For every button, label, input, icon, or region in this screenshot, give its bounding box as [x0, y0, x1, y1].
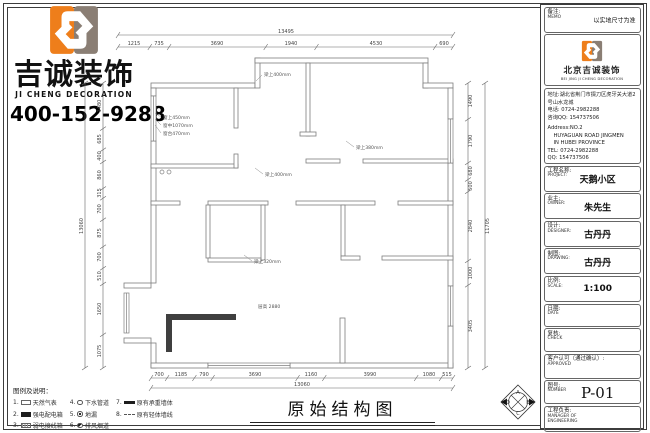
- svg-text:510: 510: [97, 271, 103, 281]
- bearing-wall-icon: [124, 401, 135, 404]
- address-cn: 地址:湖北省荆门市掇刀区虎牙关大道2号山水龙城: [548, 92, 637, 107]
- svg-text:梁上380mm: 梁上380mm: [356, 144, 383, 151]
- svg-text:700: 700: [97, 204, 103, 214]
- drawing-number-value: P-01: [581, 384, 614, 402]
- svg-text:1000: 1000: [468, 267, 474, 280]
- svg-text:A: A: [516, 390, 520, 396]
- legend-item: 1.天然气表: [13, 398, 63, 407]
- svg-text:C: C: [516, 411, 520, 417]
- svg-text:3405: 3405: [468, 320, 474, 333]
- svg-text:1490: 1490: [468, 95, 474, 108]
- plan-annotations: 窗上450mm 窗中1070mm 窗台470mm 梁上400mm 梁上380mm…: [155, 71, 383, 310]
- svg-text:790: 790: [199, 372, 209, 378]
- svg-text:2840: 2840: [468, 220, 474, 233]
- svg-text:735: 735: [154, 41, 164, 47]
- phone-cn: 电话: 0724-2982288: [548, 107, 637, 115]
- scale-value: 1:100: [583, 284, 612, 294]
- svg-text:3690: 3690: [211, 41, 224, 47]
- svg-text:1160: 1160: [305, 372, 318, 378]
- qq-cn: 咨询QQ: 154737506: [548, 115, 637, 123]
- tel-en: TEL: 0724-2982288: [548, 148, 637, 156]
- legend-title: 图例及说明：: [13, 385, 238, 395]
- svg-text:梁上400mm: 梁上400mm: [265, 171, 292, 178]
- walls: [124, 58, 453, 368]
- svg-text:窗中1070mm: 窗中1070mm: [163, 122, 193, 129]
- svg-text:685: 685: [97, 134, 103, 144]
- svg-text:500: 500: [468, 181, 474, 191]
- company-row: 北京吉诚装饰 BEI JING JI CHENG DECORATION: [544, 34, 641, 86]
- svg-text:1790: 1790: [468, 135, 474, 148]
- svg-text:315: 315: [97, 188, 103, 198]
- svg-text:1075: 1075: [97, 345, 103, 358]
- legend-item: 8.原有轻体墙线: [116, 410, 173, 419]
- legend-item: 6.排风烟道: [70, 421, 109, 430]
- address-en-3: IN HUBEI PROVINCE: [548, 140, 637, 148]
- svg-text:梁上400mm: 梁上400mm: [264, 71, 291, 78]
- svg-text:860: 860: [97, 170, 103, 180]
- gas-meter-icon: [21, 400, 31, 405]
- svg-text:1185: 1185: [175, 372, 188, 378]
- field-date: 日期:DATE: [544, 304, 641, 327]
- svg-text:D: D: [506, 400, 510, 406]
- project-value: 天鹅小区: [580, 173, 616, 186]
- field-project: 工程名称:PROJECT: 天鹅小区: [544, 166, 641, 192]
- legend-item: 7.原有承重墙体: [116, 398, 173, 407]
- drafter-value: 古丹丹: [584, 255, 611, 268]
- light-wall-icon: [124, 414, 135, 415]
- ceiling-height-label: 层高 2880: [258, 303, 280, 310]
- memo-label-en: MEMO: [548, 16, 562, 21]
- owner-value: 朱先生: [584, 200, 611, 213]
- svg-text:窗台470mm: 窗台470mm: [163, 130, 190, 137]
- exhaust-flue-icon: [77, 423, 83, 429]
- drawing-title: 原始结构图: [250, 395, 435, 426]
- dim-top-total: 13495: [278, 29, 294, 35]
- svg-text:1480: 1480: [97, 100, 103, 113]
- power-distribution-box-icon: [21, 412, 31, 417]
- svg-text:700: 700: [97, 252, 103, 262]
- svg-text:1080: 1080: [423, 372, 436, 378]
- svg-text:680: 680: [468, 166, 474, 176]
- memo-row: 备注:MEMO 以实地尺寸为准: [544, 7, 641, 33]
- svg-text:400: 400: [97, 151, 103, 161]
- address-en-2: HUYAGUAN ROAD JINGMEN: [548, 133, 637, 141]
- svg-text:3990: 3990: [364, 372, 377, 378]
- company-name-en: BEI JING JI CHENG DECORATION: [561, 77, 623, 81]
- svg-text:1940: 1940: [285, 41, 298, 47]
- qq-en: QQ: 154737506: [548, 155, 637, 163]
- svg-text:窗上450mm: 窗上450mm: [163, 114, 190, 121]
- svg-text:1215: 1215: [128, 41, 141, 47]
- svg-text:690: 690: [439, 41, 449, 47]
- floor-plan: 13495 1215 735 3690 1940 4530 690 700 11…: [58, 26, 518, 404]
- dim-left-total: 13060: [79, 218, 85, 234]
- legend: 图例及说明： 1.天然气表 2.强电配电箱 3.弱电接线箱 4.下水管道 5.地…: [13, 385, 238, 430]
- company-logo-small-icon: [581, 40, 603, 62]
- address-en-1: Address:NO.2: [548, 125, 637, 133]
- svg-text:4530: 4530: [370, 41, 383, 47]
- load-bearing-walls: [166, 314, 236, 352]
- field-approved: 客户认可（通过确认）:APPROVED: [544, 354, 641, 379]
- field-drafter: 制图:DRAWING: 古丹丹: [544, 248, 641, 274]
- floor-drain-icon: [77, 411, 83, 417]
- legend-item: 3.弱电接线箱: [13, 421, 63, 430]
- dim-right-total: 11705: [485, 218, 491, 234]
- field-owner: 业主:OWNER: 朱先生: [544, 193, 641, 219]
- field-scale: 比例:SCALE: 1:100: [544, 276, 641, 302]
- svg-text:1650: 1650: [97, 303, 103, 316]
- field-manager: 工程负责:MANAGER OF ENGINEERING: [544, 406, 641, 432]
- weak-current-box-icon: [21, 423, 31, 428]
- svg-text:515: 515: [442, 372, 452, 378]
- field-check: 复核:CHECK: [544, 328, 641, 352]
- legend-item: 5.地漏: [70, 410, 109, 419]
- address-row: 地址:湖北省荆门市掇刀区虎牙关大道2号山水龙城 电话: 0724-2982288…: [544, 88, 641, 164]
- dim-bottom-total: 13060: [294, 382, 310, 388]
- field-designer: 设计:DESIGNER: 古丹丹: [544, 221, 641, 247]
- svg-text:875: 875: [97, 228, 103, 238]
- title-block: 备注:MEMO 以实地尺寸为准 北京吉诚装饰 BEI JING JI CHENG…: [540, 4, 644, 429]
- svg-text:梁上320mm: 梁上320mm: [254, 258, 281, 265]
- svg-text:700: 700: [154, 372, 164, 378]
- legend-item: 2.强电配电箱: [13, 410, 63, 419]
- designer-value: 古丹丹: [584, 228, 611, 241]
- compass-icon: A B C D: [499, 383, 537, 421]
- svg-text:3690: 3690: [249, 372, 262, 378]
- legend-item: 4.下水管道: [70, 398, 109, 407]
- drain-pipe-icon: [77, 400, 83, 406]
- memo-value: 以实地尺寸为准: [593, 15, 635, 24]
- field-number: 图号:NUMBER P-01: [544, 380, 641, 404]
- company-name-cn: 北京吉诚装饰: [563, 64, 620, 76]
- svg-text:B: B: [526, 400, 530, 406]
